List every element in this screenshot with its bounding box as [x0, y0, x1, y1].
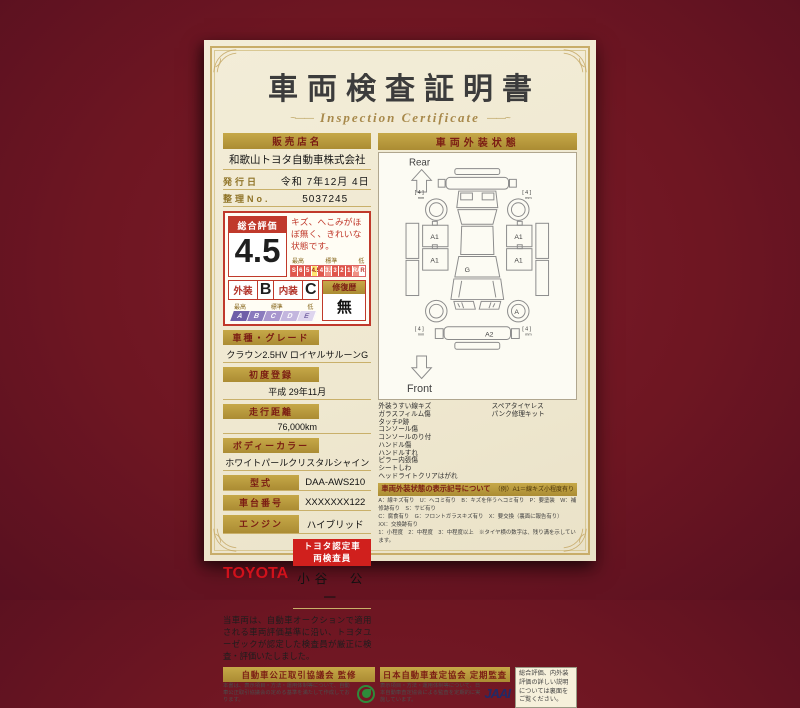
front-arrow-icon — [412, 356, 432, 378]
flourish-right: ——~ — [487, 113, 510, 124]
field-label: 型式 — [223, 475, 299, 490]
note-item: 外装うすい線キズ — [378, 403, 491, 411]
grade-cell: E — [297, 311, 317, 321]
tread-unit: mm — [526, 332, 532, 337]
windshield-shape — [455, 256, 500, 277]
field-label: ボディーカラー — [223, 438, 319, 453]
overall-rating-label: 総合評価 — [229, 217, 286, 233]
issue-date-label: 発行日 — [223, 175, 279, 188]
interior-grade: C — [303, 281, 318, 299]
overall-rating-value: 4.5 — [229, 233, 286, 267]
certificate-subtitle: Inspection Certificate — [320, 110, 480, 126]
tread-unit: mm — [418, 332, 424, 337]
fair-trade-text: 本書は、表示項目・方法・運用体制等について、自動車公正取引協議会の定める基準を満… — [223, 683, 354, 704]
rear-arrow-icon — [412, 170, 432, 192]
note-item: ガラスフィルム傷 — [378, 411, 491, 419]
left-fender-panel — [406, 260, 419, 295]
scale-mid-label: 標準 — [325, 256, 337, 265]
legend-line: C：腐食有り G：フロントガラスキズ有り X：要交換（裏面に報告有り） XX：交… — [378, 513, 577, 529]
mark-left-front-door: A1 — [431, 257, 440, 264]
field-value: ホワイトパールクリスタルシャイン — [223, 453, 371, 471]
scale-cell: RA — [353, 266, 360, 276]
rating-box: 総合評価 4.5 キズ、へこみがほぼ無く、きれいな状態です。 最高 標準 低 — [223, 211, 371, 326]
inspector-section: TOYOTA トヨタ認定車両検査員 小谷 公一 — [223, 539, 371, 610]
rear-left-tire — [426, 199, 447, 220]
scale-cell: 2 — [339, 266, 346, 276]
details-column: 販売店名 和歌山トヨタ自動車株式会社 発行日 令和 7年12月 4日 整理No.… — [223, 133, 371, 662]
mark-right-rear-door: A1 — [515, 234, 524, 241]
jaai-text: 表示項目・方法・運用体制等について、日本自動車査定協会による監査を定期的に実施し… — [380, 683, 481, 704]
field-mileage: 走行距離 76,000km — [223, 404, 371, 434]
ref-no-value: 5037245 — [279, 194, 371, 205]
field-value: ハイブリッド — [299, 515, 371, 533]
mark-front-right-wheel: A — [515, 309, 520, 316]
fair-trade-logo-icon — [357, 685, 375, 703]
repair-history-label: 修復歴 — [323, 281, 365, 294]
scale-cell-selected: 4.5 — [312, 266, 319, 276]
note-item: シートしわ — [378, 465, 491, 473]
note-item: コンソール傷 — [378, 426, 491, 434]
note-item: ヘッドライトクリアはがれ — [378, 473, 491, 481]
car-diagram-box: Rear Front A1 A1 A1 A1 G A A2 [ 4 ] mm [… — [378, 152, 577, 400]
issue-date-row: 発行日 令和 7年12月 4日 — [223, 170, 371, 190]
left-quarter-panel — [406, 223, 419, 258]
tread-unit: mm — [418, 195, 424, 200]
fair-trade-title: 自動車公正取引協議会 監修 — [223, 667, 375, 682]
subtitle-row: ~—— Inspection Certificate ——~ — [218, 110, 582, 126]
legend-line: 1：小程度 2：中程度 3：中程度以上 ※タイヤ横の数字は、残り溝を示しています… — [378, 529, 577, 545]
repair-history-value: 無 — [323, 294, 365, 320]
mark-front-bumper: A2 — [486, 332, 495, 339]
field-value: クラウン2.5HV ロイヤルサルーンG — [223, 345, 371, 363]
scale-high-label: 最高 — [292, 256, 304, 265]
toyota-logo: TOYOTA — [223, 565, 288, 583]
field-engine: エンジン ハイブリッド — [223, 515, 371, 534]
field-label: 車種・グレード — [223, 330, 319, 345]
rear-glass-shape — [458, 210, 497, 225]
scale-cell: R — [360, 266, 366, 276]
rating-comment: キズ、へこみがほぼ無く、きれいな状態です。 — [290, 216, 366, 256]
scale-cell: 3.5 — [325, 266, 332, 276]
repair-history: 修復歴 無 — [322, 280, 366, 321]
flourish-left: ~—— — [290, 113, 313, 124]
condition-notes: 外装うすい線キズ ガラスフィルム傷 タッチP跡 コンソール傷 コンソールのり付 … — [378, 403, 577, 481]
left-headlight-shape — [454, 301, 475, 309]
scale-cell: 4 — [318, 266, 325, 276]
legend-title: 車両外装状態の表示記号について — [381, 484, 490, 494]
mark-right-front-door: A1 — [515, 257, 524, 264]
grade-high-label: 最高 — [234, 302, 246, 311]
interior-label: 内装 — [274, 281, 303, 299]
car-diagram: Rear Front A1 A1 A1 A1 G A A2 [ 4 ] mm [… — [379, 153, 576, 399]
note-item: パンク修理キット — [492, 411, 577, 419]
field-label: 初度登録 — [223, 367, 319, 382]
certificate-title: 車両検査証明書 — [218, 64, 582, 108]
field-value: DAA-AWS210 — [299, 475, 371, 490]
ref-no-row: 整理No. 5037245 — [223, 190, 371, 208]
exterior-label: 外装 — [229, 281, 258, 299]
front-left-tire — [426, 300, 447, 321]
front-bumper-shape — [445, 327, 511, 340]
mark-windshield: G — [465, 267, 470, 274]
field-first-registration: 初度登録 平成 29年11月 — [223, 367, 371, 400]
field-model-grade: 車種・グレード クラウン2.5HV ロイヤルサルーンG — [223, 330, 371, 363]
roof-shape — [461, 226, 494, 254]
ext-int-grid: 外装 B 内装 C — [228, 280, 319, 300]
overall-rating: 総合評価 4.5 — [228, 216, 287, 277]
field-body-color: ボディーカラー ホワイトパールクリスタルシャイン — [223, 438, 371, 471]
note-item: スペアタイヤレス — [492, 403, 577, 411]
scale-labels: 最高 標準 低 — [290, 256, 366, 265]
rear-direction-label: Rear — [409, 158, 431, 169]
scale-cell: 3 — [332, 266, 339, 276]
mark-left-rear-door: A1 — [431, 234, 440, 241]
field-label: エンジン — [223, 515, 299, 533]
scale-low-label: 低 — [358, 256, 364, 265]
grade-scale: A B C D E — [230, 311, 317, 321]
inspector-name: 小谷 公一 — [293, 566, 371, 606]
scale-cell: 5 — [305, 266, 312, 276]
jaai-logo: JAAI — [484, 686, 510, 701]
certified-inspector-badge: トヨタ認定車両検査員 — [293, 539, 371, 566]
jaai-box: 日本自動車査定協会 定期監査 表示項目・方法・運用体制等について、日本自動車査定… — [380, 667, 510, 708]
disclaimer-text: 当車両は、自動車オークションで適用される車両評価基準に沿い、トヨタユーゼックが認… — [223, 614, 371, 662]
tread-unit: mm — [526, 195, 532, 200]
field-value: 平成 29年11月 — [223, 382, 371, 400]
field-label: 車台番号 — [223, 495, 299, 510]
scale-cell: 6 — [298, 266, 305, 276]
front-direction-label: Front — [407, 383, 432, 395]
dealer-name: 和歌山トヨタ自動車株式会社 — [223, 149, 371, 170]
scale-cell: S — [291, 266, 298, 276]
note-item: ハンドル傷 — [378, 442, 491, 450]
certificate-paper: 車両検査証明書 ~—— Inspection Certificate ——~ 販… — [204, 40, 596, 561]
note-item: コンソールのり付 — [378, 434, 491, 442]
backside-note: 総合評価、内外装評価の詳しい説明については裏面をご覧ください。 — [515, 667, 577, 708]
legend-lines: A：線キズ有り U：ヘコミ有り B：キズを伴うヘコミ有り P：要塗装 W：補修跡… — [378, 497, 577, 546]
right-quarter-panel — [536, 223, 549, 258]
grade-scale-labels: 最高 標準 低 — [228, 302, 319, 311]
legend-header: 車両外装状態の表示記号について （例）A1＝線キズ小程度有り — [378, 483, 577, 496]
issue-date-value: 令和 7年12月 4日 — [279, 173, 371, 188]
rating-scale: S 6 5 4.5 4 3.5 3 2 1 RA R — [290, 265, 366, 277]
field-value: 76,000km — [223, 419, 371, 434]
legend-example: （例）A1＝線キズ小程度有り — [495, 484, 574, 493]
field-chassis-no: 車台番号 XXXXXXX122 — [223, 495, 371, 511]
footer: 自動車公正取引協議会 監修 本書は、表示項目・方法・運用体制等について、自動車公… — [218, 667, 582, 708]
note-item: ピラー内張傷 — [378, 457, 491, 465]
legend-line: A：線キズ有り U：ヘコミ有り B：キズを伴うヘコミ有り P：要塗装 W：補修跡… — [378, 497, 577, 513]
rear-right-tire — [508, 199, 529, 220]
right-fender-panel — [536, 260, 549, 295]
exterior-header: 車両外装状態 — [378, 133, 577, 150]
field-value: XXXXXXX122 — [299, 495, 371, 510]
field-label: 走行距離 — [223, 404, 319, 419]
field-model-code: 型式 DAA-AWS210 — [223, 475, 371, 491]
exterior-column: 車両外装状態 — [378, 133, 577, 662]
exterior-grade: B — [258, 281, 274, 299]
scale-cell: 1 — [346, 266, 353, 276]
fair-trade-box: 自動車公正取引協議会 監修 本書は、表示項目・方法・運用体制等について、自動車公… — [223, 667, 375, 708]
rear-bumper-shape — [446, 177, 508, 189]
grade-low-label: 低 — [307, 302, 313, 311]
jaai-title: 日本自動車査定協会 定期監査 — [380, 667, 510, 682]
grade-mid-label: 標準 — [271, 302, 283, 311]
ref-no-label: 整理No. — [223, 192, 279, 205]
dealer-label: 販売店名 — [223, 133, 371, 149]
